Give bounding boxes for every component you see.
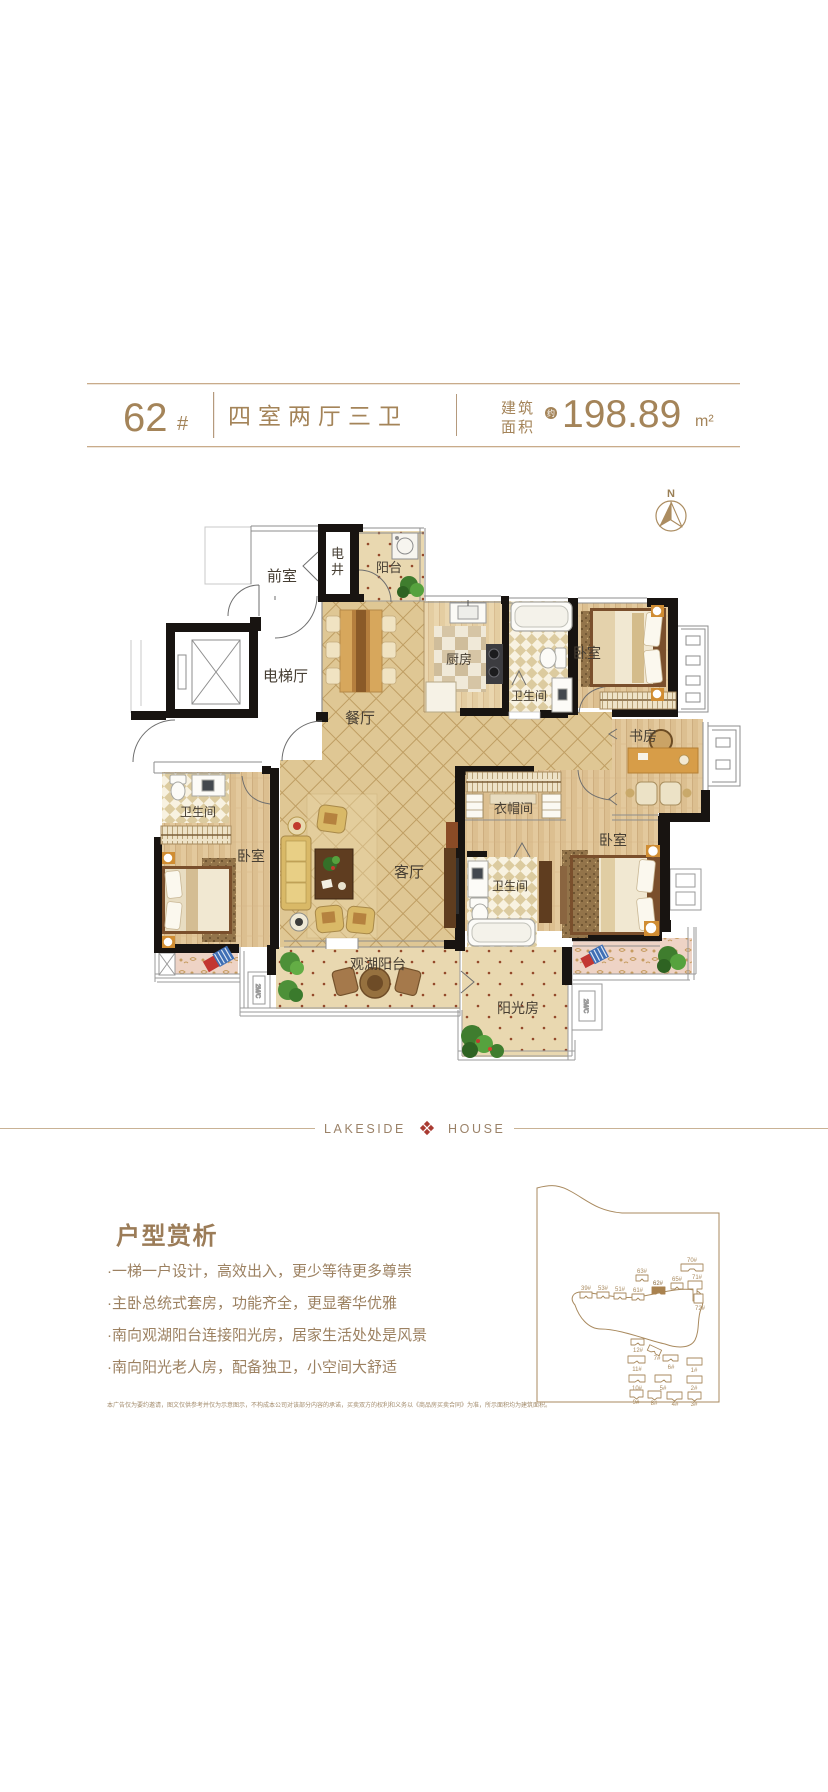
svg-text:m²: m²	[695, 413, 714, 430]
svg-text:·主卧总统式套房，功能齐全，更显奢华优雅: ·主卧总统式套房，功能齐全，更显奢华优雅	[107, 1294, 397, 1312]
svg-text:阳光房: 阳光房	[497, 1000, 539, 1016]
svg-text:建筑: 建筑	[501, 400, 535, 417]
svg-text:7#: 7#	[654, 1356, 661, 1362]
svg-text:餐厅: 餐厅	[345, 710, 375, 727]
svg-text:观湖阳台: 观湖阳台	[350, 956, 406, 972]
svg-text:61#: 61#	[633, 1288, 644, 1294]
svg-text:N: N	[667, 488, 675, 500]
svg-text:71#: 71#	[692, 1275, 703, 1281]
svg-text:卫生间: 卫生间	[492, 879, 528, 893]
svg-text:卫生间: 卫生间	[511, 689, 547, 703]
svg-text:书房: 书房	[629, 728, 657, 744]
svg-text:11#: 11#	[632, 1367, 642, 1373]
svg-text:约: 约	[547, 408, 555, 418]
svg-text:四室两厅三卫: 四室两厅三卫	[228, 403, 408, 429]
svg-text:前室: 前室	[267, 568, 297, 585]
svg-text:LAKESIDE: LAKESIDE	[324, 1122, 406, 1136]
svg-text:39#: 39#	[581, 1286, 592, 1292]
svg-text:本广告仅为要约邀请，图文仅供参考并仅为示意图示，不构成本公司: 本广告仅为要约邀请，图文仅供参考并仅为示意图示，不构成本公司对该部分内容的承诺，…	[107, 1401, 551, 1409]
svg-text:4#: 4#	[672, 1402, 679, 1408]
svg-text:电梯厅: 电梯厅	[263, 668, 308, 685]
svg-text:8#: 8#	[651, 1401, 658, 1407]
svg-text:1#: 1#	[691, 1368, 698, 1374]
svg-text:2M/C: 2M/C	[582, 999, 588, 1014]
svg-text:厨房: 厨房	[446, 652, 472, 667]
svg-text:72#: 72#	[695, 1306, 706, 1312]
svg-text:·南向观湖阳台连接阳光房，居家生活处处是风景: ·南向观湖阳台连接阳光房，居家生活处处是风景	[107, 1327, 427, 1344]
svg-text:卧室: 卧室	[599, 832, 627, 848]
svg-text:·一梯一户设计，高效出入，更少等待更多尊崇: ·一梯一户设计，高效出入，更少等待更多尊崇	[107, 1262, 412, 1280]
svg-text:3#: 3#	[691, 1402, 698, 1408]
svg-text:9#: 9#	[633, 1400, 640, 1406]
svg-text:面积: 面积	[501, 419, 535, 436]
svg-text:65#: 65#	[672, 1277, 683, 1283]
svg-text:卫生间: 卫生间	[180, 805, 216, 819]
svg-text:63#: 63#	[637, 1269, 648, 1275]
svg-text:12#: 12#	[633, 1348, 644, 1354]
svg-text:6#: 6#	[668, 1365, 675, 1371]
svg-text:2M/C: 2M/C	[254, 984, 260, 999]
svg-text:·南向阳光老人房，配备独卫，小空间大舒适: ·南向阳光老人房，配备独卫，小空间大舒适	[107, 1359, 397, 1376]
svg-text:62: 62	[123, 396, 168, 440]
svg-text:53#: 53#	[598, 1286, 609, 1292]
svg-text:电: 电	[331, 546, 344, 561]
svg-text:衣帽间: 衣帽间	[494, 801, 533, 816]
svg-text:70#: 70#	[687, 1258, 698, 1264]
svg-text:客厅: 客厅	[394, 864, 424, 881]
svg-text:51#: 51#	[615, 1287, 626, 1293]
svg-text:卧室: 卧室	[573, 645, 601, 661]
svg-text:阳台: 阳台	[376, 560, 402, 575]
svg-text:户型赏析: 户型赏析	[116, 1222, 218, 1250]
svg-text:2#: 2#	[691, 1386, 698, 1392]
svg-text:#: #	[177, 413, 189, 435]
svg-text:62#: 62#	[653, 1281, 664, 1287]
svg-text:卧室: 卧室	[237, 848, 265, 864]
svg-text:井: 井	[331, 562, 344, 577]
svg-text:HOUSE: HOUSE	[448, 1122, 505, 1136]
svg-text:198.89: 198.89	[562, 393, 681, 436]
